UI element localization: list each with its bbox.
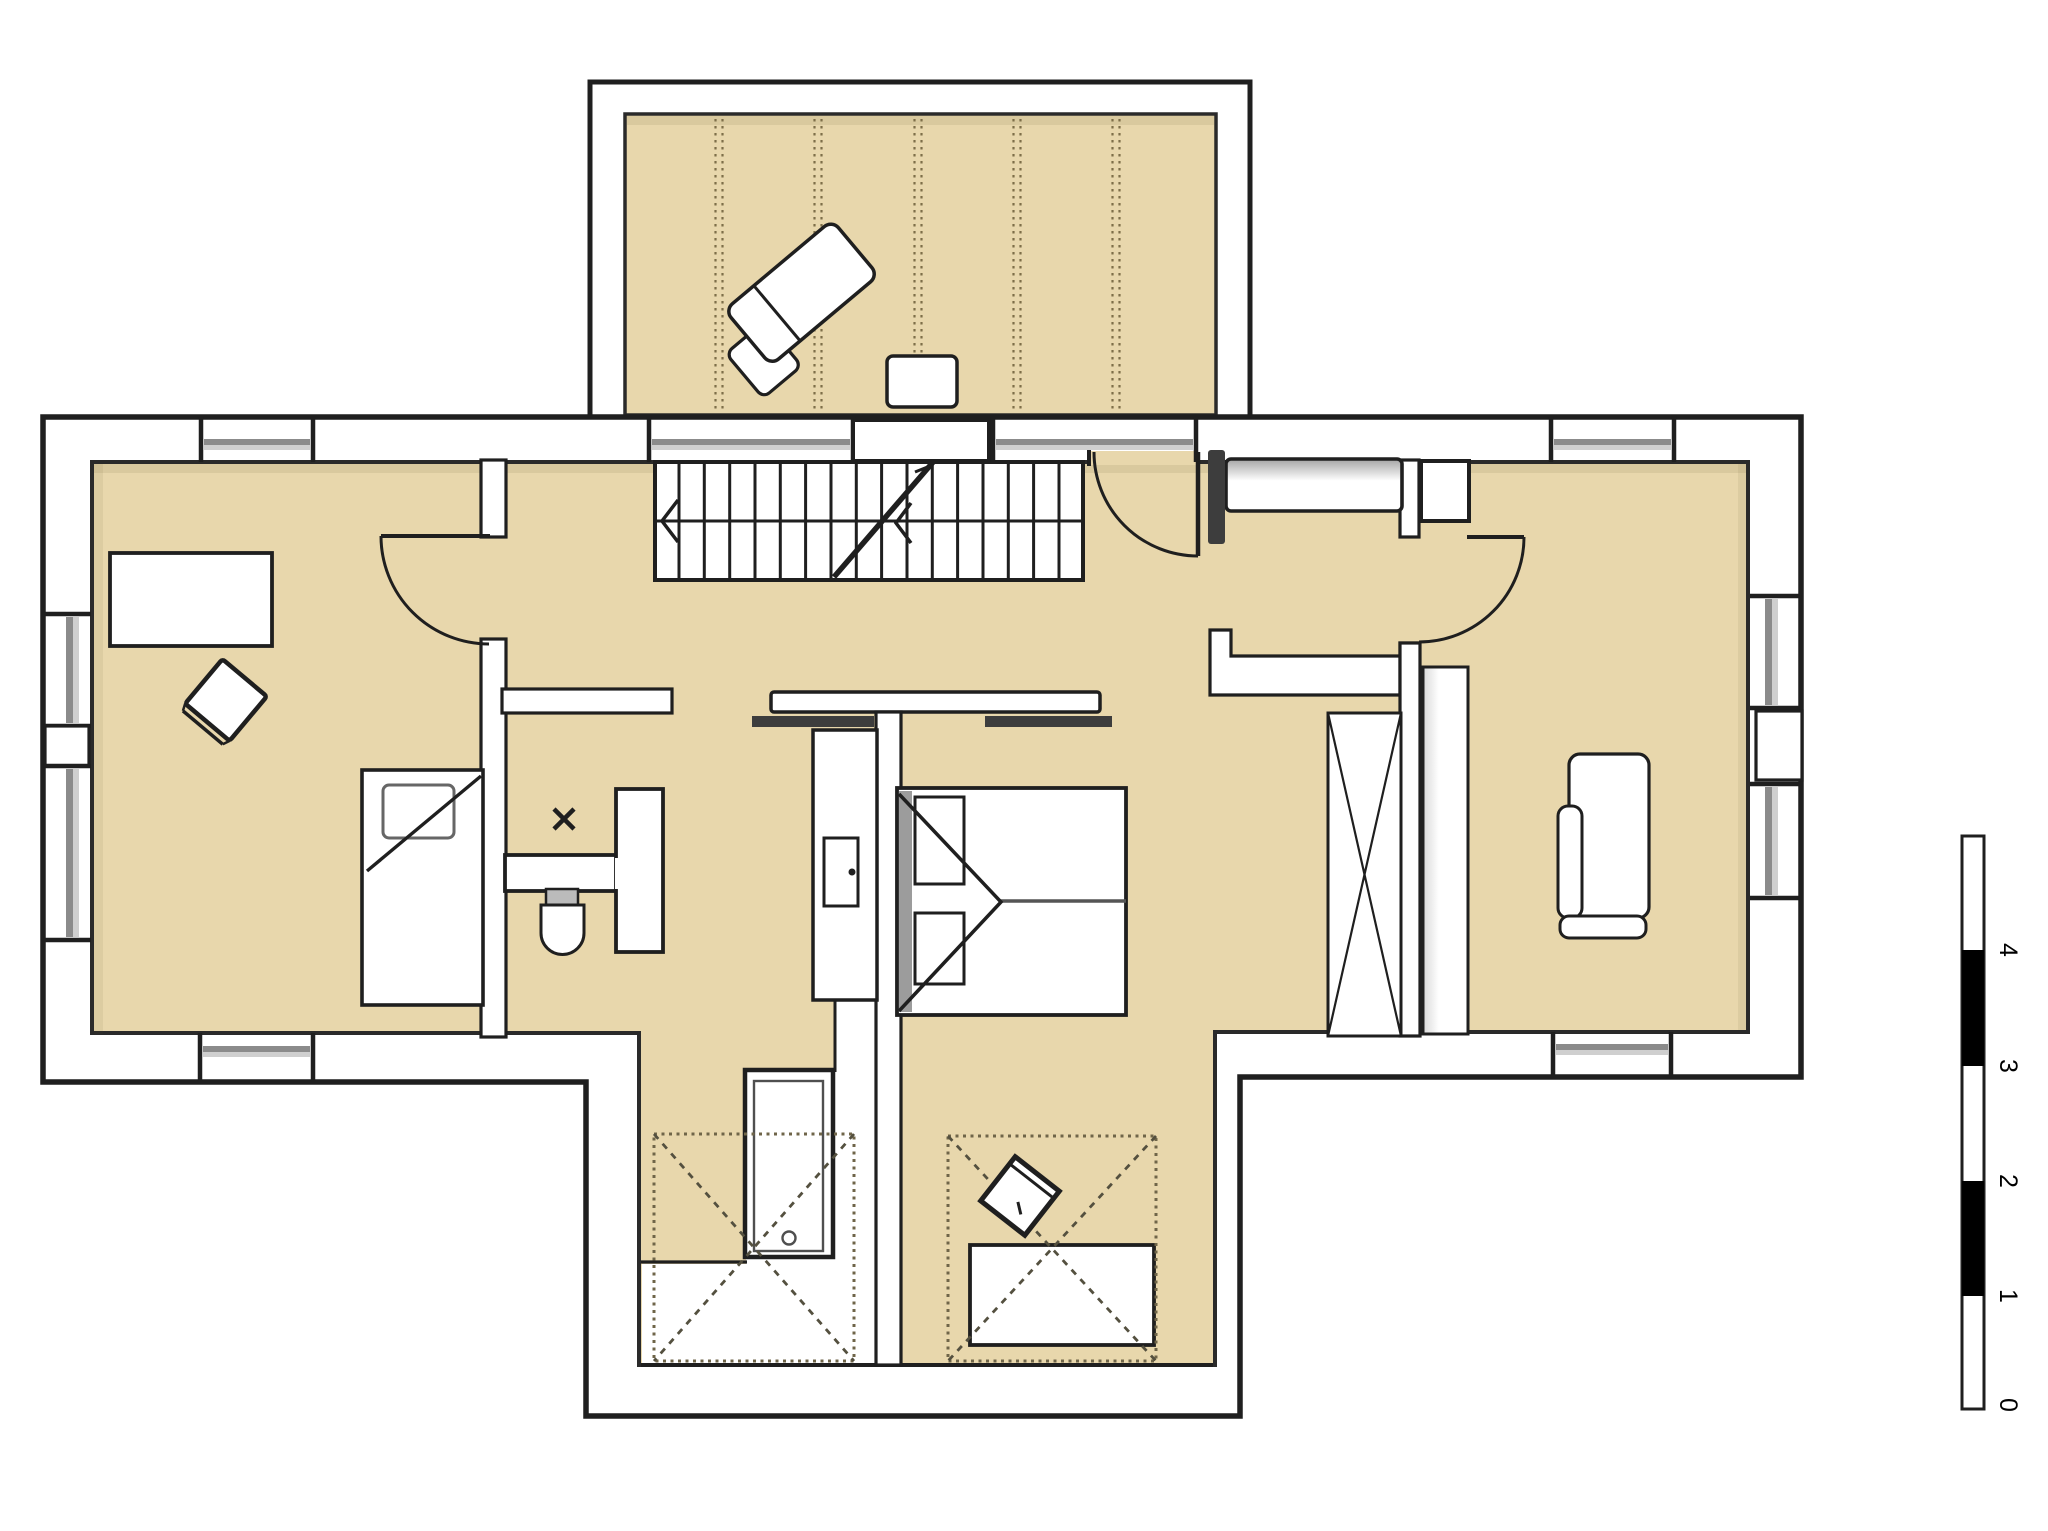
svg-text:4: 4 xyxy=(1994,943,2022,957)
svg-text:0: 0 xyxy=(1994,1398,2022,1412)
svg-text:1: 1 xyxy=(1994,1289,2022,1303)
svg-text:3: 3 xyxy=(1994,1059,2022,1073)
svg-text:2: 2 xyxy=(1994,1174,2022,1188)
